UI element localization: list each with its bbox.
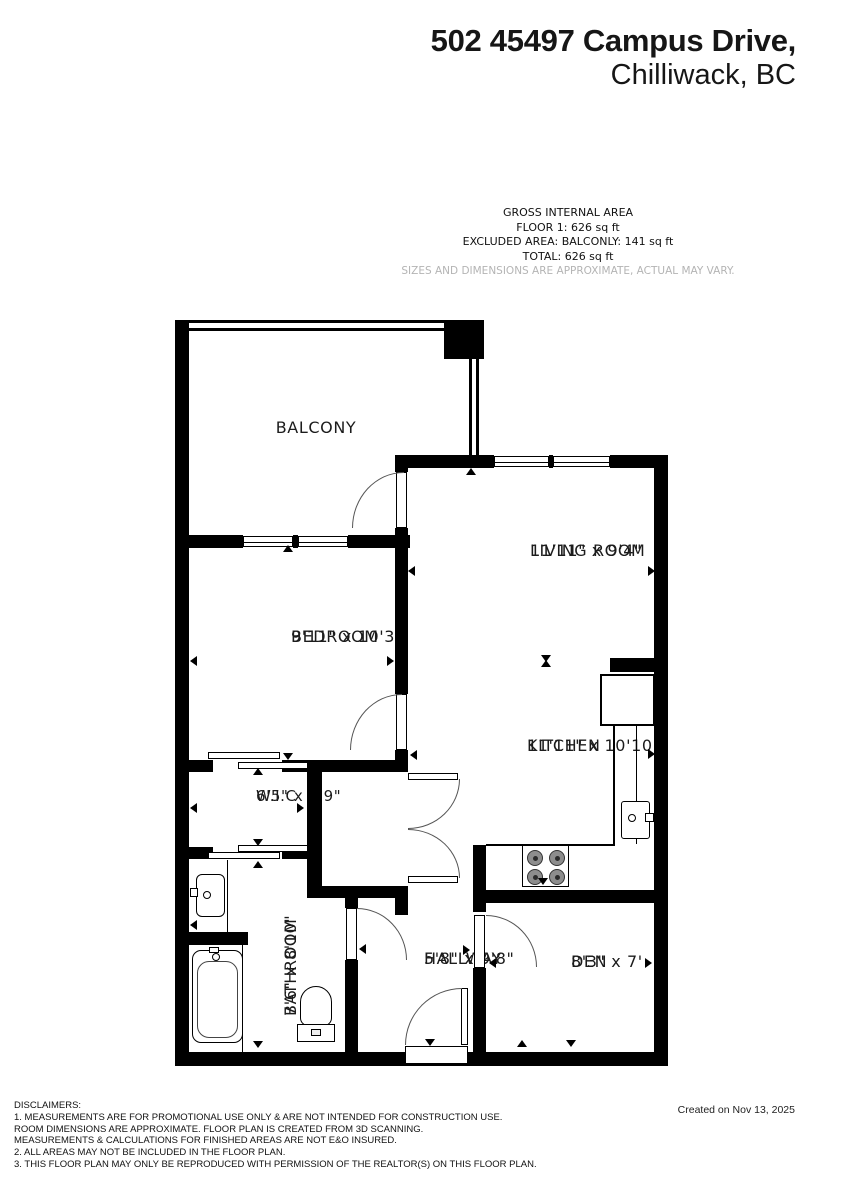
disclaimers: DISCLAIMERS: 1. MEASUREMENTS ARE FOR PRO… xyxy=(14,1100,537,1171)
scan-marker-up xyxy=(253,861,263,868)
scan-marker-down xyxy=(253,839,263,846)
scan-marker-up xyxy=(466,468,476,475)
scan-marker-right xyxy=(648,566,655,576)
door-swing-arc xyxy=(352,472,404,528)
wall xyxy=(307,760,322,898)
door-swing-arc xyxy=(408,829,460,878)
scan-marker-left xyxy=(190,803,197,813)
door-swing-arc xyxy=(350,694,402,750)
room-label-balcony: BALCONY xyxy=(276,417,357,439)
wall xyxy=(307,886,408,898)
floor-plan-drawing: BALCONY LIVING ROOM 11'11" x 9'4" BEDROO… xyxy=(0,0,848,1200)
window xyxy=(553,456,610,467)
fridge xyxy=(600,674,655,726)
door-leaf xyxy=(405,1046,468,1064)
toilet-flush xyxy=(311,1029,321,1036)
sliding-door xyxy=(238,845,308,852)
toilet-bowl xyxy=(300,986,332,1026)
scan-marker-left xyxy=(489,958,496,968)
scan-marker-left xyxy=(410,750,417,760)
scan-marker-up xyxy=(569,896,579,903)
door-leaf xyxy=(346,908,357,960)
door-leaf xyxy=(474,915,485,968)
wall xyxy=(473,968,486,1052)
wall xyxy=(345,960,358,1052)
scan-marker-down xyxy=(425,1039,435,1046)
door-swing-arc xyxy=(405,988,462,1045)
counter-line xyxy=(227,860,228,933)
bathtub-faucet xyxy=(209,947,219,953)
scan-marker-up xyxy=(253,768,263,775)
wall xyxy=(345,898,358,908)
stove-burner-center xyxy=(555,875,560,880)
scan-marker-down xyxy=(253,1041,263,1048)
window xyxy=(494,456,549,467)
scan-marker-left xyxy=(190,656,197,666)
scan-marker-left xyxy=(408,566,415,576)
sliding-door xyxy=(238,762,308,769)
wall xyxy=(175,535,243,548)
window xyxy=(298,536,348,547)
balcony-railing xyxy=(469,359,479,455)
wall xyxy=(610,455,668,468)
sliding-door xyxy=(208,752,280,759)
door-leaf xyxy=(461,988,468,1045)
counter-line xyxy=(613,726,615,846)
scan-marker-right xyxy=(297,803,304,813)
floor-plan-page: 502 45497 Campus Drive, Chilliwack, BC G… xyxy=(0,0,848,1200)
stove-burner-center xyxy=(555,856,560,861)
bathroom-sink-drain xyxy=(203,891,211,899)
door-swing-arc xyxy=(408,779,460,829)
wall xyxy=(395,886,408,915)
wall xyxy=(395,455,408,472)
kitchen-sink-faucet xyxy=(628,814,636,822)
created-date: Created on Nov 13, 2025 xyxy=(678,1104,795,1116)
bathtub-faucet-knob xyxy=(212,953,220,961)
wall xyxy=(189,760,213,772)
wall xyxy=(175,320,189,1066)
scan-marker-down xyxy=(566,1040,576,1047)
balcony-railing xyxy=(189,320,444,331)
scan-marker-right xyxy=(645,958,652,968)
scan-marker-down xyxy=(283,753,293,760)
scan-marker-left xyxy=(190,920,197,930)
wall xyxy=(473,845,486,890)
wall xyxy=(189,932,248,945)
wall xyxy=(395,528,408,694)
wall xyxy=(444,320,484,359)
bathtub-inner xyxy=(197,961,238,1038)
scan-marker-up xyxy=(283,545,293,552)
scan-marker-up xyxy=(541,660,551,667)
stove-burner-center xyxy=(533,856,538,861)
scan-marker-right xyxy=(648,749,655,759)
scan-marker-right xyxy=(387,656,394,666)
wall xyxy=(654,455,668,1066)
scan-marker-right xyxy=(463,945,470,955)
wall xyxy=(395,455,494,468)
sliding-door xyxy=(208,852,280,859)
scan-marker-up xyxy=(517,1040,527,1047)
kitchen-sink-tap xyxy=(645,813,654,822)
scan-marker-left xyxy=(359,944,366,954)
scan-marker-down xyxy=(538,878,548,885)
wall xyxy=(610,658,668,672)
bathroom-sink-tap xyxy=(190,888,198,897)
